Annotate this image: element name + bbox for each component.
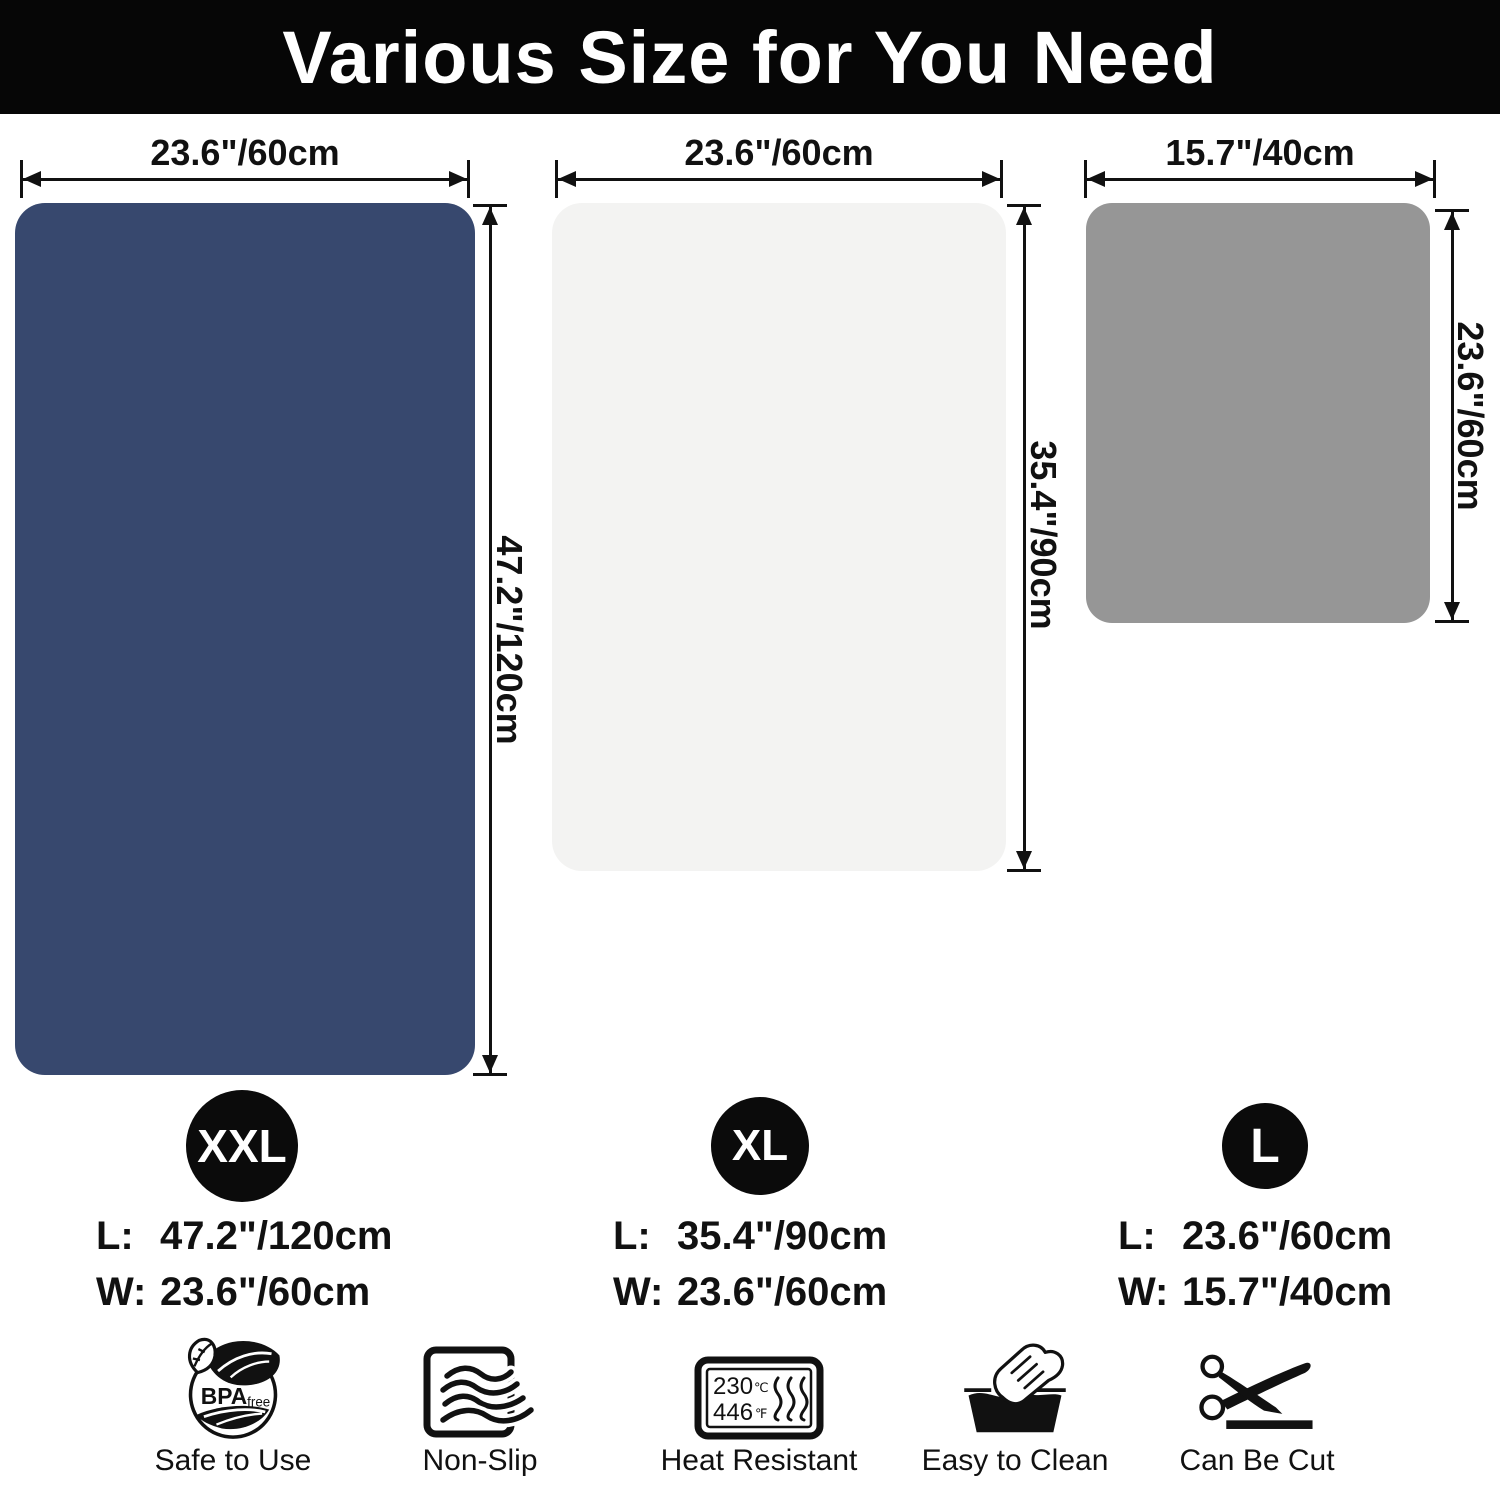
header-bar: Various Size for You Need (0, 0, 1500, 114)
arrowhead-up-icon (482, 207, 498, 225)
size-badge-l: L (1222, 1103, 1308, 1189)
bpa-free-icon: BPA free (174, 1330, 292, 1442)
feature-safe-to-use: BPA free Safe to Use (118, 1330, 348, 1447)
spec-key: W: (96, 1264, 160, 1320)
feature-label: Non-Slip (365, 1444, 595, 1478)
arrowhead-right-icon (1415, 171, 1433, 187)
feature-can-be-cut: Can Be Cut (1142, 1330, 1372, 1447)
spec-value: 23.6"/60cm (160, 1270, 370, 1314)
arrowhead-left-icon (23, 171, 41, 187)
arrow-line (555, 178, 1003, 181)
spec-value: 35.4"/90cm (677, 1214, 887, 1258)
spec-value: 23.6"/60cm (677, 1270, 887, 1314)
size-badge-xxl: XXL (186, 1090, 298, 1202)
spec-value: 23.6"/60cm (1182, 1214, 1392, 1258)
scissors-icon (1195, 1348, 1319, 1442)
spec-width: W:23.6"/60cm (613, 1264, 887, 1320)
xxl-height-dimension-label: 47.2"/120cm (488, 535, 530, 744)
xl-height-dimension-label: 35.4"/90cm (1022, 440, 1064, 629)
xxl-width-arrow (20, 166, 470, 192)
spec-value: 15.7"/40cm (1182, 1270, 1392, 1314)
feature-label: Heat Resistant (644, 1444, 874, 1478)
arrowhead-right-icon (449, 171, 467, 187)
feature-label: Can Be Cut (1142, 1444, 1372, 1478)
free-text: free (247, 1394, 270, 1409)
arrowhead-up-icon (1016, 207, 1032, 225)
arrowhead-down-icon (482, 1055, 498, 1073)
arrow-tick (467, 160, 470, 198)
specs-xxl: L:47.2"/120cm W:23.6"/60cm (96, 1208, 392, 1320)
unit-celsius: ℃ (754, 1380, 769, 1395)
arrowhead-up-icon (1444, 212, 1460, 230)
spec-length: L:35.4"/90cm (613, 1208, 887, 1264)
mat-xxl (15, 203, 475, 1075)
spec-key: W: (613, 1264, 677, 1320)
spec-key: L: (96, 1208, 160, 1264)
spec-width: W:23.6"/60cm (96, 1264, 392, 1320)
l-width-arrow (1084, 166, 1436, 192)
specs-l: L:23.6"/60cm W:15.7"/40cm (1118, 1208, 1392, 1320)
mat-l (1086, 203, 1430, 623)
l-height-dimension-label: 23.6"/60cm (1449, 321, 1491, 510)
badge-label: XL (732, 1121, 788, 1171)
feature-heat-resistant: 230 ℃ 446 ℉ Heat Resistant (644, 1330, 874, 1445)
spec-key: L: (613, 1208, 677, 1264)
size-badge-xl: XL (711, 1097, 809, 1195)
feature-non-slip: Non-Slip (365, 1330, 595, 1445)
spec-width: W:15.7"/40cm (1118, 1264, 1392, 1320)
spec-value: 47.2"/120cm (160, 1214, 392, 1258)
arrow-tick (1435, 620, 1469, 623)
arrow-tick (1000, 160, 1003, 198)
page-title: Various Size for You Need (282, 15, 1217, 100)
spec-length: L:23.6"/60cm (1118, 1208, 1392, 1264)
feature-easy-to-clean: Easy to Clean (900, 1330, 1130, 1447)
arrowhead-left-icon (558, 171, 576, 187)
arrowhead-down-icon (1444, 602, 1460, 620)
spec-key: W: (1118, 1264, 1182, 1320)
arrowhead-right-icon (982, 171, 1000, 187)
arrowhead-down-icon (1016, 851, 1032, 869)
hand-wash-icon (955, 1334, 1075, 1442)
heat-resistant-icon: 230 ℃ 446 ℉ (694, 1356, 824, 1440)
badge-label: L (1250, 1119, 1279, 1174)
arrowhead-left-icon (1087, 171, 1105, 187)
temp-fahrenheit: 446 (713, 1399, 753, 1426)
arrow-line (20, 178, 470, 181)
specs-xl: L:35.4"/90cm W:23.6"/60cm (613, 1208, 887, 1320)
arrow-tick (1007, 869, 1041, 872)
mat-xl (552, 203, 1006, 871)
infographic-page: Various Size for You Need 23.6"/60cm 47.… (0, 0, 1500, 1485)
arrow-line (1084, 178, 1436, 181)
arrow-tick (473, 1073, 507, 1076)
spec-length: L:47.2"/120cm (96, 1208, 392, 1264)
feature-label: Easy to Clean (900, 1444, 1130, 1478)
bpa-text: BPA (201, 1383, 247, 1409)
badge-label: XXL (197, 1119, 286, 1173)
temp-celsius: 230 (713, 1373, 753, 1400)
spec-key: L: (1118, 1208, 1182, 1264)
arrow-tick (1433, 160, 1436, 198)
non-slip-icon (421, 1344, 539, 1440)
feature-label: Safe to Use (118, 1444, 348, 1478)
unit-fahrenheit: ℉ (755, 1406, 767, 1421)
xl-width-arrow (555, 166, 1003, 192)
